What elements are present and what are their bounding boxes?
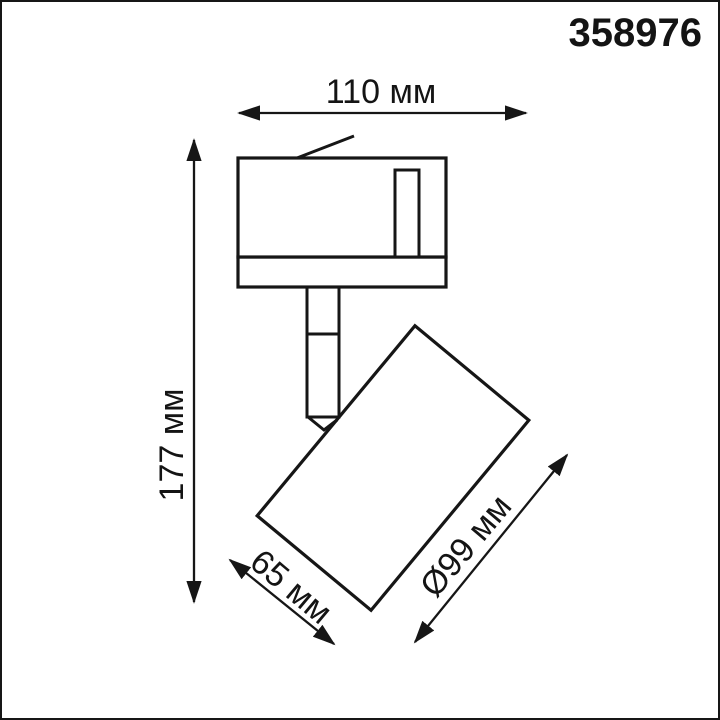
track-adapter-slot — [395, 170, 419, 257]
track-adapter-flange — [238, 257, 446, 287]
technical-drawing-sheet: 358976 110 мм 177 мм 65 мм Ø99 мм — [0, 0, 720, 720]
stem-lower-segment — [307, 334, 339, 417]
width-dimension-label: 110 мм — [326, 75, 436, 109]
stem-upper-segment — [307, 287, 339, 334]
release-lever-line — [297, 136, 354, 158]
height-dimension-label: 177 мм — [155, 389, 189, 502]
product-code: 358976 — [569, 13, 702, 53]
